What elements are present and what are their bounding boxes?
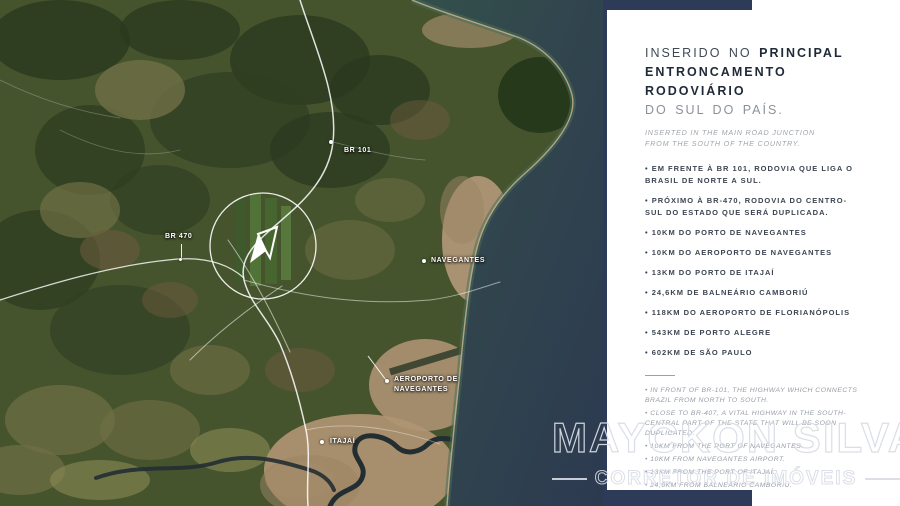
en-bullet: 10KM FROM NAVEGANTES AIRPORT. xyxy=(645,455,860,465)
en-bullet: CLOSE TO BR-407, A VITAL HIGHWAY IN THE … xyxy=(645,409,860,439)
en-bullet: IN FRONT OF BR-101, THE HIGHWAY WHICH CO… xyxy=(645,386,860,406)
en-bullet: 13KM FROM THE PORT OF ITAJAÍ. xyxy=(645,468,860,478)
card-subtitle: INSERTED IN THE MAIN ROAD JUNCTION FROM … xyxy=(645,127,874,149)
itajai-label: ITAJAÍ xyxy=(330,438,355,445)
title-bold-1: PRINCIPAL xyxy=(759,46,843,60)
section-divider xyxy=(645,375,675,376)
pt-bullet: 10KM DO AEROPORTO DE NAVEGANTES xyxy=(645,247,853,259)
itajai-dot xyxy=(320,440,324,444)
pt-bullet: PRÓXIMO À BR-470, RODOVIA DO CENTRO-SUL … xyxy=(645,195,853,219)
title-regular: INSERIDO NO xyxy=(645,46,752,60)
title-line-2: ENTRONCAMENTO RODOVIÁRIO xyxy=(645,63,874,101)
satellite-map: BR 101 BR 470 NAVEGANTES AEROPORTO DE NA… xyxy=(0,0,603,506)
navegantes-dot xyxy=(422,259,426,263)
subtitle-line-1: INSERTED IN THE MAIN ROAD JUNCTION xyxy=(645,127,874,138)
satellite-map-art xyxy=(0,0,603,506)
bullet-list-en: IN FRONT OF BR-101, THE HIGHWAY WHICH CO… xyxy=(645,386,874,490)
pt-bullet: 118KM DO AEROPORTO DE FLORIANÓPOLIS xyxy=(645,307,853,319)
bullet-list-pt: EM FRENTE À BR 101, RODOVIA QUE LIGA O B… xyxy=(645,163,874,359)
br470-label: BR 470 xyxy=(165,233,192,240)
card-title: INSERIDO NO PRINCIPAL ENTRONCAMENTO RODO… xyxy=(645,44,874,120)
br470-pin-line xyxy=(181,244,182,258)
en-bullet: 10KM FROM THE PORT OF NAVEGANTES. xyxy=(645,442,860,452)
br101-dot xyxy=(329,140,333,144)
title-line-3: DO SUL DO PAÍS. xyxy=(645,101,874,120)
pt-bullet: 24,6KM DE BALNEÁRIO CAMBORIÚ xyxy=(645,287,853,299)
pt-bullet: 10KM DO PORTO DE NAVEGANTES xyxy=(645,227,853,239)
airport-label-line2: NAVEGANTES xyxy=(394,386,448,393)
subtitle-line-2: FROM THE SOUTH OF THE COUNTRY. xyxy=(645,138,874,149)
br470-dot xyxy=(179,258,182,261)
title-line-1: INSERIDO NO PRINCIPAL xyxy=(645,44,874,63)
navegantes-label: NAVEGANTES xyxy=(431,257,485,264)
airport-dot xyxy=(385,379,389,383)
br101-label: BR 101 xyxy=(344,147,371,154)
en-bullet: 24,6KM FROM BALNEÁRIO CAMBORIÚ. xyxy=(645,481,860,490)
airport-label-line1: AEROPORTO DE xyxy=(394,376,458,383)
info-card: INSERIDO NO PRINCIPAL ENTRONCAMENTO RODO… xyxy=(607,10,900,490)
slide: BR 101 BR 470 NAVEGANTES AEROPORTO DE NA… xyxy=(0,0,900,506)
pt-bullet: EM FRENTE À BR 101, RODOVIA QUE LIGA O B… xyxy=(645,163,853,187)
pt-bullet: 543KM DE PORTO ALEGRE xyxy=(645,327,853,339)
pt-bullet: 602KM DE SÃO PAULO xyxy=(645,347,853,359)
pt-bullet: 13KM DO PORTO DE ITAJAÍ xyxy=(645,267,853,279)
